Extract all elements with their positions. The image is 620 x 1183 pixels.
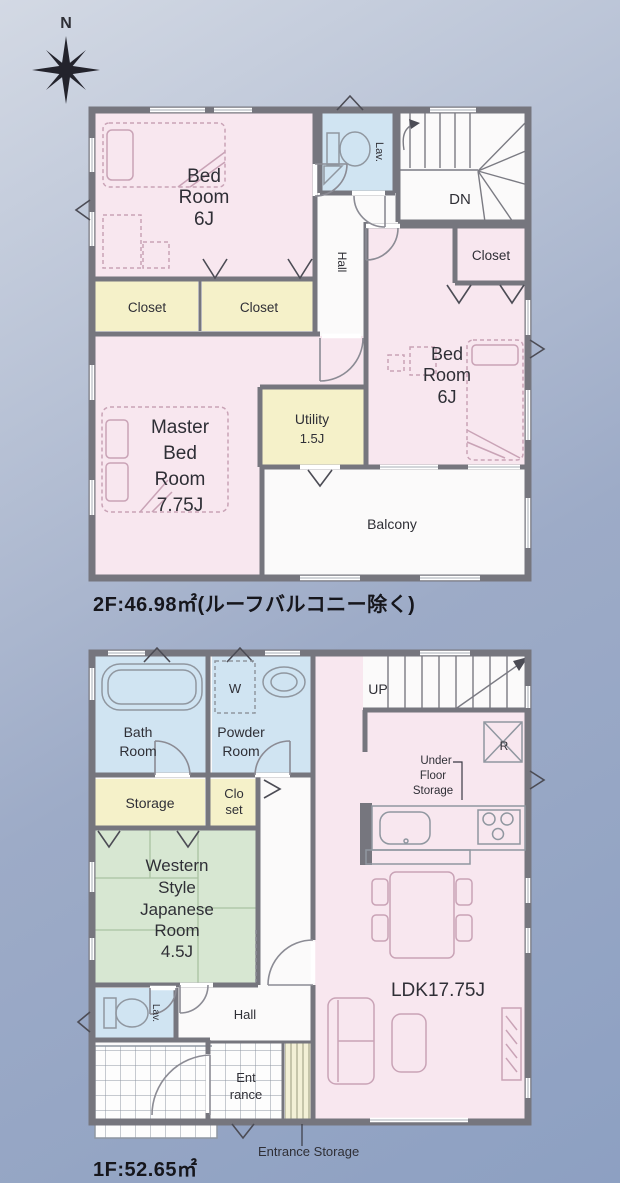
label-hall-2f: Hall bbox=[335, 252, 349, 273]
label-master-4: 7.75J bbox=[157, 495, 203, 516]
room-ldk bbox=[315, 656, 528, 1120]
label-bath-1: Bath bbox=[124, 724, 153, 740]
label-japanese-5: 4.5J bbox=[161, 942, 193, 961]
floor-plan-canvas: N bbox=[0, 0, 620, 1183]
label-japanese-1: Western bbox=[146, 856, 209, 875]
label-lav-1f: Lav. bbox=[150, 1004, 161, 1022]
label-underfloor-3: Storage bbox=[413, 785, 453, 797]
label-underfloor-2: Floor bbox=[420, 770, 446, 782]
floorplan-page: N bbox=[0, 0, 620, 1183]
compass-icon: N bbox=[32, 15, 100, 104]
label-master-3: Room bbox=[155, 469, 206, 490]
label-closet-1f-2: set bbox=[225, 802, 243, 817]
label-bedroom-right-3: 6J bbox=[437, 387, 456, 407]
label-lav-2f: Lav. bbox=[373, 142, 385, 162]
label-entrance-1: Ent bbox=[236, 1070, 256, 1085]
room-lav-1f bbox=[95, 988, 176, 1038]
label-stairs-up: UP bbox=[368, 681, 387, 697]
label-washer: W bbox=[229, 681, 242, 696]
label-entrance-storage: Entrance Storage bbox=[258, 1144, 359, 1159]
compass-label: N bbox=[60, 15, 72, 32]
label-entrance-2: rance bbox=[230, 1087, 263, 1102]
floor2-area-label: 2F:46.98㎡(ルーフバルコニー除く) bbox=[93, 592, 415, 616]
label-fridge: R bbox=[500, 739, 509, 753]
label-japanese-4: Room bbox=[154, 921, 199, 940]
floor1-area-label: 1F:52.65㎡ bbox=[93, 1157, 198, 1181]
label-japanese-3: Japanese bbox=[140, 900, 214, 919]
label-closet-b: Closet bbox=[240, 300, 279, 315]
label-powder-1: Powder bbox=[217, 724, 265, 740]
label-master-1: Master bbox=[151, 417, 210, 438]
label-master-2: Bed bbox=[163, 443, 197, 464]
label-bedroom-left-2: Room bbox=[179, 187, 230, 208]
label-utility-2: 1.5J bbox=[300, 431, 325, 446]
entrance-storage-area bbox=[285, 1042, 313, 1122]
floor2-plan: Bed Room 6J Closet Closet Lav. Hall DN C… bbox=[76, 96, 544, 616]
label-stairs-dn: DN bbox=[449, 191, 471, 208]
label-bath-2: Room bbox=[119, 743, 156, 759]
label-closet-right: Closet bbox=[472, 248, 511, 263]
label-hall-1f: Hall bbox=[234, 1007, 257, 1022]
label-storage: Storage bbox=[125, 795, 174, 811]
label-bedroom-right-1: Bed bbox=[431, 344, 463, 364]
label-ldk: LDK17.75J bbox=[391, 980, 485, 1001]
label-powder-2: Room bbox=[222, 743, 259, 759]
label-balcony: Balcony bbox=[367, 516, 417, 532]
floor1-plan: Bath Room Powder Room W Storage Clo set … bbox=[78, 648, 544, 1181]
label-bedroom-left-1: Bed bbox=[187, 166, 221, 187]
label-utility-1: Utility bbox=[295, 411, 329, 427]
label-bedroom-left-3: 6J bbox=[194, 209, 214, 230]
label-closet-1f-1: Clo bbox=[224, 786, 244, 801]
label-closet-a: Closet bbox=[128, 300, 167, 315]
label-underfloor-1: Under bbox=[420, 755, 451, 767]
label-japanese-2: Style bbox=[158, 878, 196, 897]
label-bedroom-right-2: Room bbox=[423, 365, 471, 385]
